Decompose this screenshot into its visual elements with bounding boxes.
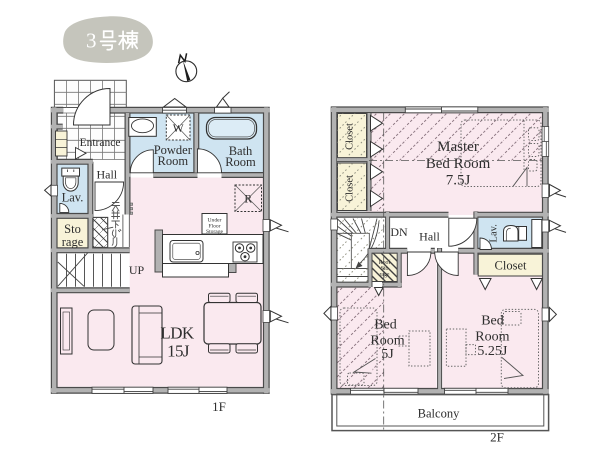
svg-text:Roof: Roof <box>379 259 391 266</box>
svg-text:rage: rage <box>380 272 390 278</box>
svg-text:Hall: Hall <box>419 230 440 244</box>
svg-text:Lav.: Lav. <box>489 224 500 242</box>
svg-text:Room: Room <box>225 155 256 169</box>
svg-text:Hall: Hall <box>96 168 117 182</box>
svg-text:Bed: Bed <box>481 314 504 329</box>
svg-text:7.5J: 7.5J <box>446 172 471 188</box>
svg-text:LDK: LDK <box>160 324 194 343</box>
svg-text:2F: 2F <box>490 430 504 445</box>
svg-text:Room: Room <box>475 330 509 345</box>
svg-text:UP: UP <box>129 263 145 277</box>
svg-text:R: R <box>244 193 252 205</box>
svg-text:Balcony: Balcony <box>418 407 460 421</box>
svg-text:3: 3 <box>86 29 97 53</box>
svg-text:Bed: Bed <box>374 318 397 333</box>
svg-text:Closet: Closet <box>495 259 527 273</box>
svg-text:5J: 5J <box>381 347 394 362</box>
svg-text:DN: DN <box>390 225 408 239</box>
svg-text:Storage: Storage <box>206 229 224 235</box>
svg-text:Room: Room <box>158 154 189 168</box>
svg-text:15J: 15J <box>167 342 190 361</box>
svg-text:Closet: Closet <box>345 175 356 202</box>
svg-text:Bed Room: Bed Room <box>426 156 491 172</box>
svg-text:Master: Master <box>437 139 479 155</box>
svg-text:1F: 1F <box>212 399 226 414</box>
svg-text:5.25J: 5.25J <box>477 344 508 359</box>
svg-text:Closet: Closet <box>345 123 356 150</box>
svg-text:W: W <box>173 123 184 135</box>
svg-text:Entrance: Entrance <box>80 137 121 149</box>
svg-text:Lav.: Lav. <box>62 191 84 205</box>
svg-text:rage: rage <box>62 235 84 249</box>
